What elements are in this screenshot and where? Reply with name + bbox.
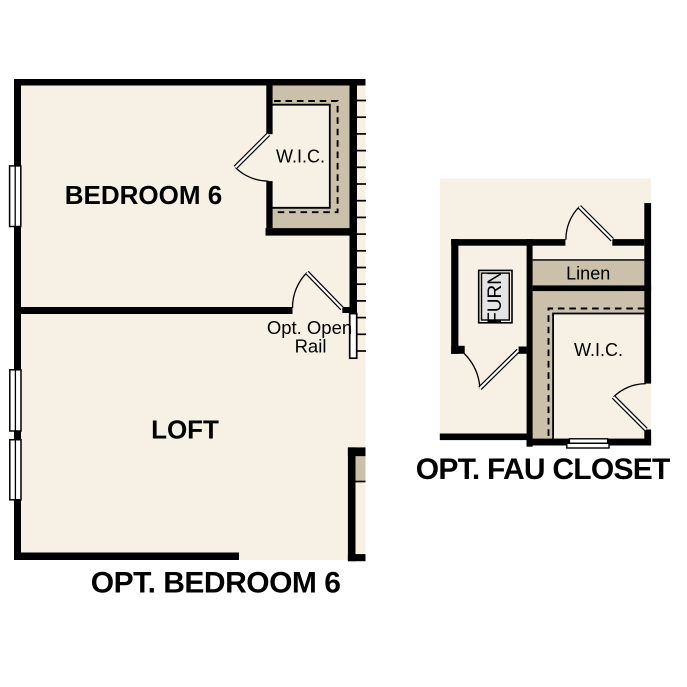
svg-text:Linen: Linen <box>566 264 610 284</box>
svg-text:FURN: FURN <box>485 271 506 324</box>
svg-text:Rail: Rail <box>295 336 327 357</box>
svg-text:OPT. FAU CLOSET: OPT. FAU CLOSET <box>416 453 670 486</box>
svg-text:LOFT: LOFT <box>151 415 219 445</box>
svg-text:W.I.C.: W.I.C. <box>574 340 623 360</box>
svg-text:OPT. BEDROOM 6: OPT. BEDROOM 6 <box>91 567 341 600</box>
svg-text:W.I.C.: W.I.C. <box>276 147 325 167</box>
svg-text:BEDROOM 6: BEDROOM 6 <box>65 180 222 210</box>
